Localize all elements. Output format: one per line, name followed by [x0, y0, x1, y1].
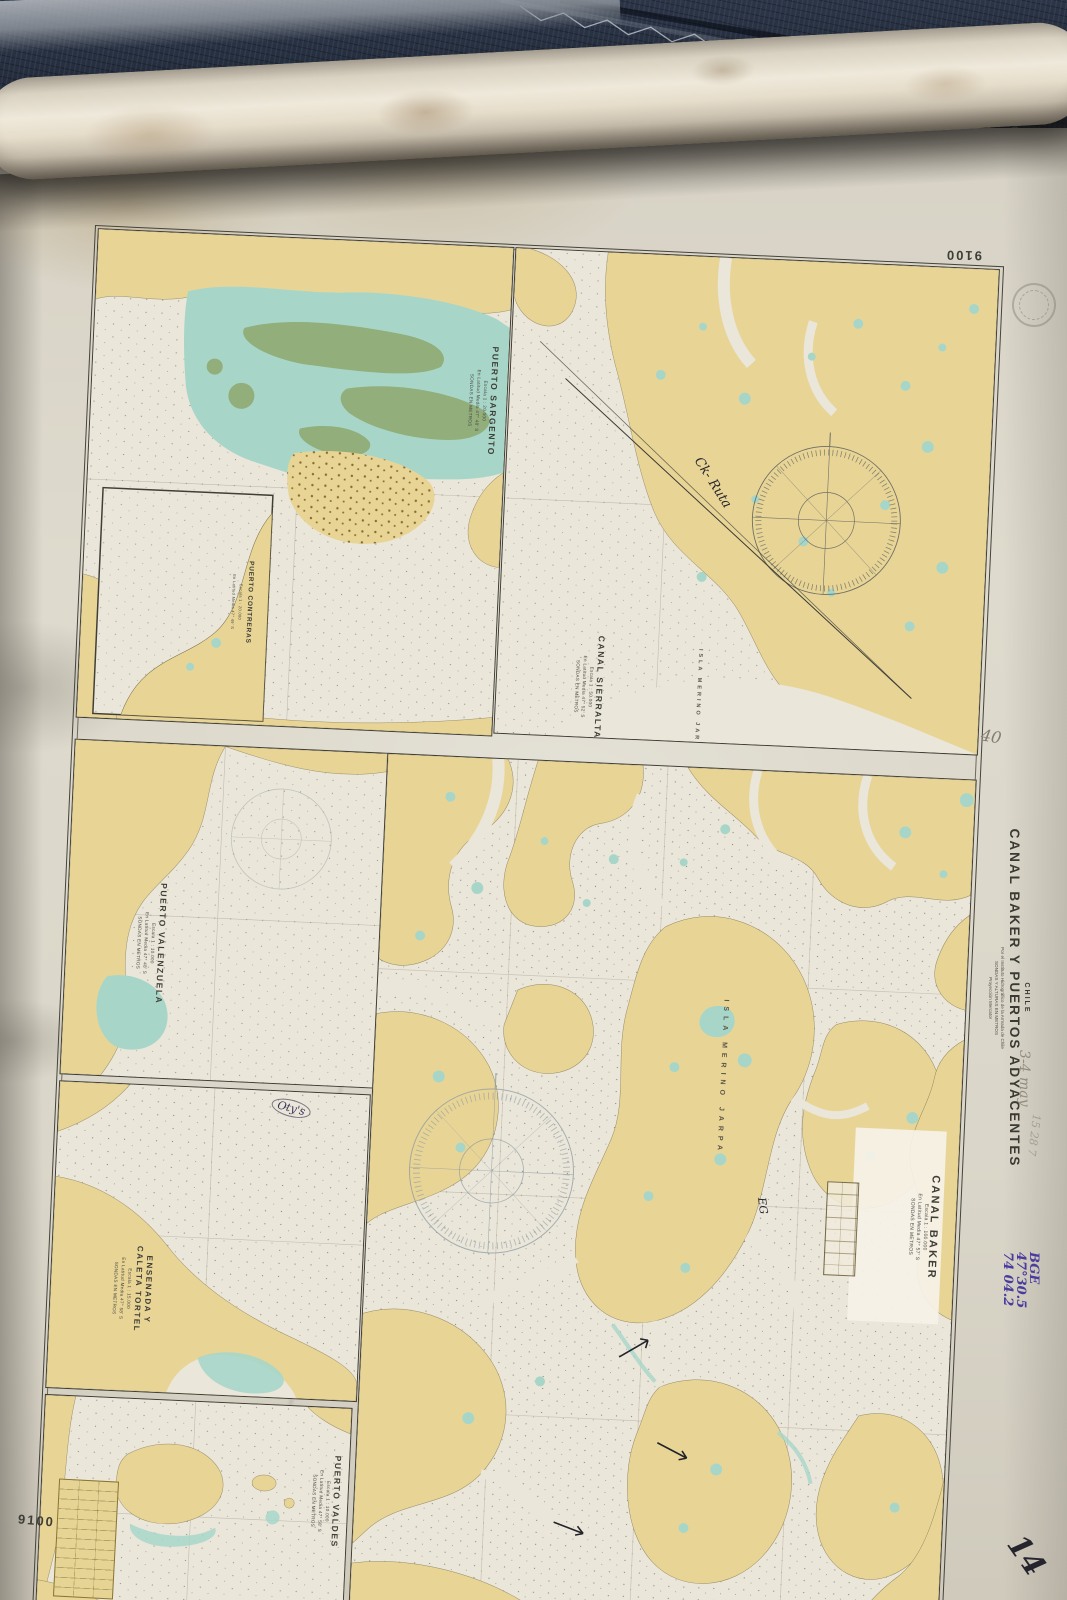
purple-line: 74 04.2: [1001, 1252, 1014, 1382]
conversion-table: [823, 1181, 859, 1276]
purple-line: 47°30.5: [1014, 1252, 1027, 1382]
inset-canal-baker-main: CANAL BAKER Escala 1 : 100.000 En Latitu…: [347, 753, 977, 1600]
title-block-sierralta: CANAL SIERRALTA Escala 1 : 50.000 En Lat…: [558, 623, 608, 751]
inset-puerto-sargento: PUERTO SARGENTO Escala 1 : 20.000 En Lat…: [76, 228, 515, 736]
handwritten-pencil-40: 40: [980, 725, 1003, 747]
title-block-contreras: PUERTO CONTRERAS Escala 1 : 20.000 En La…: [217, 535, 257, 668]
chart-subtitle: Proyección Mercator: [987, 788, 993, 1208]
title-block-valenzuela: PUERTO VALENZUELA Escala 1 : 10.000 En L…: [117, 854, 171, 1032]
inset-caleta-tortel: ENSENADA Y CALETA TORTEL Escala 1 : 15.0…: [45, 1080, 371, 1402]
chart-printed-area: PUERTO SARGENTO Escala 1 : 20.000 En Lat…: [31, 225, 1004, 1600]
chart-number-top-right: 9100: [945, 248, 982, 264]
handwritten-purple-position: BGE 47°30.5 74 04.2: [1001, 1252, 1040, 1382]
inset-canal-sierralta: CANAL SIERRALTA Escala 1 : 50.000 En Lat…: [493, 247, 1000, 755]
title-block-sargento: PUERTO SARGENTO Escala 1 : 20.000 En Lat…: [448, 301, 503, 499]
title-block-valdes: PUERTO VALDES Escala 1 : 10.000 En Latit…: [288, 1418, 345, 1583]
chart-subtitle: Por el Instituto Hidrográfico de la Arma…: [999, 788, 1005, 1208]
reference-table-graphic: [53, 1479, 119, 1600]
handwritten-eg-note: EG: [755, 1197, 770, 1215]
title-block-tortel: ENSENADA Y CALETA TORTEL Escala 1 : 15.0…: [97, 1201, 157, 1375]
tortel-map-graphic: [46, 1081, 370, 1401]
chart-number-bottom-left: 9100: [17, 1511, 55, 1529]
photo-of-rolled-nautical-chart: PUERTO SARGENTO Escala 1 : 20.000 En Lat…: [0, 0, 1067, 1600]
valenzuela-map-graphic: [60, 740, 387, 1088]
purple-line: BGE: [1027, 1252, 1040, 1382]
inset-puerto-valenzuela: PUERTO VALENZUELA Escala 1 : 10.000 En L…: [59, 739, 388, 1089]
title-block-canal-baker: CANAL BAKER Escala 1 : 100.000 En Latitu…: [847, 1127, 947, 1324]
chart-subtitle: SONDAS Y ALTURAS EN METROS: [993, 788, 999, 1208]
